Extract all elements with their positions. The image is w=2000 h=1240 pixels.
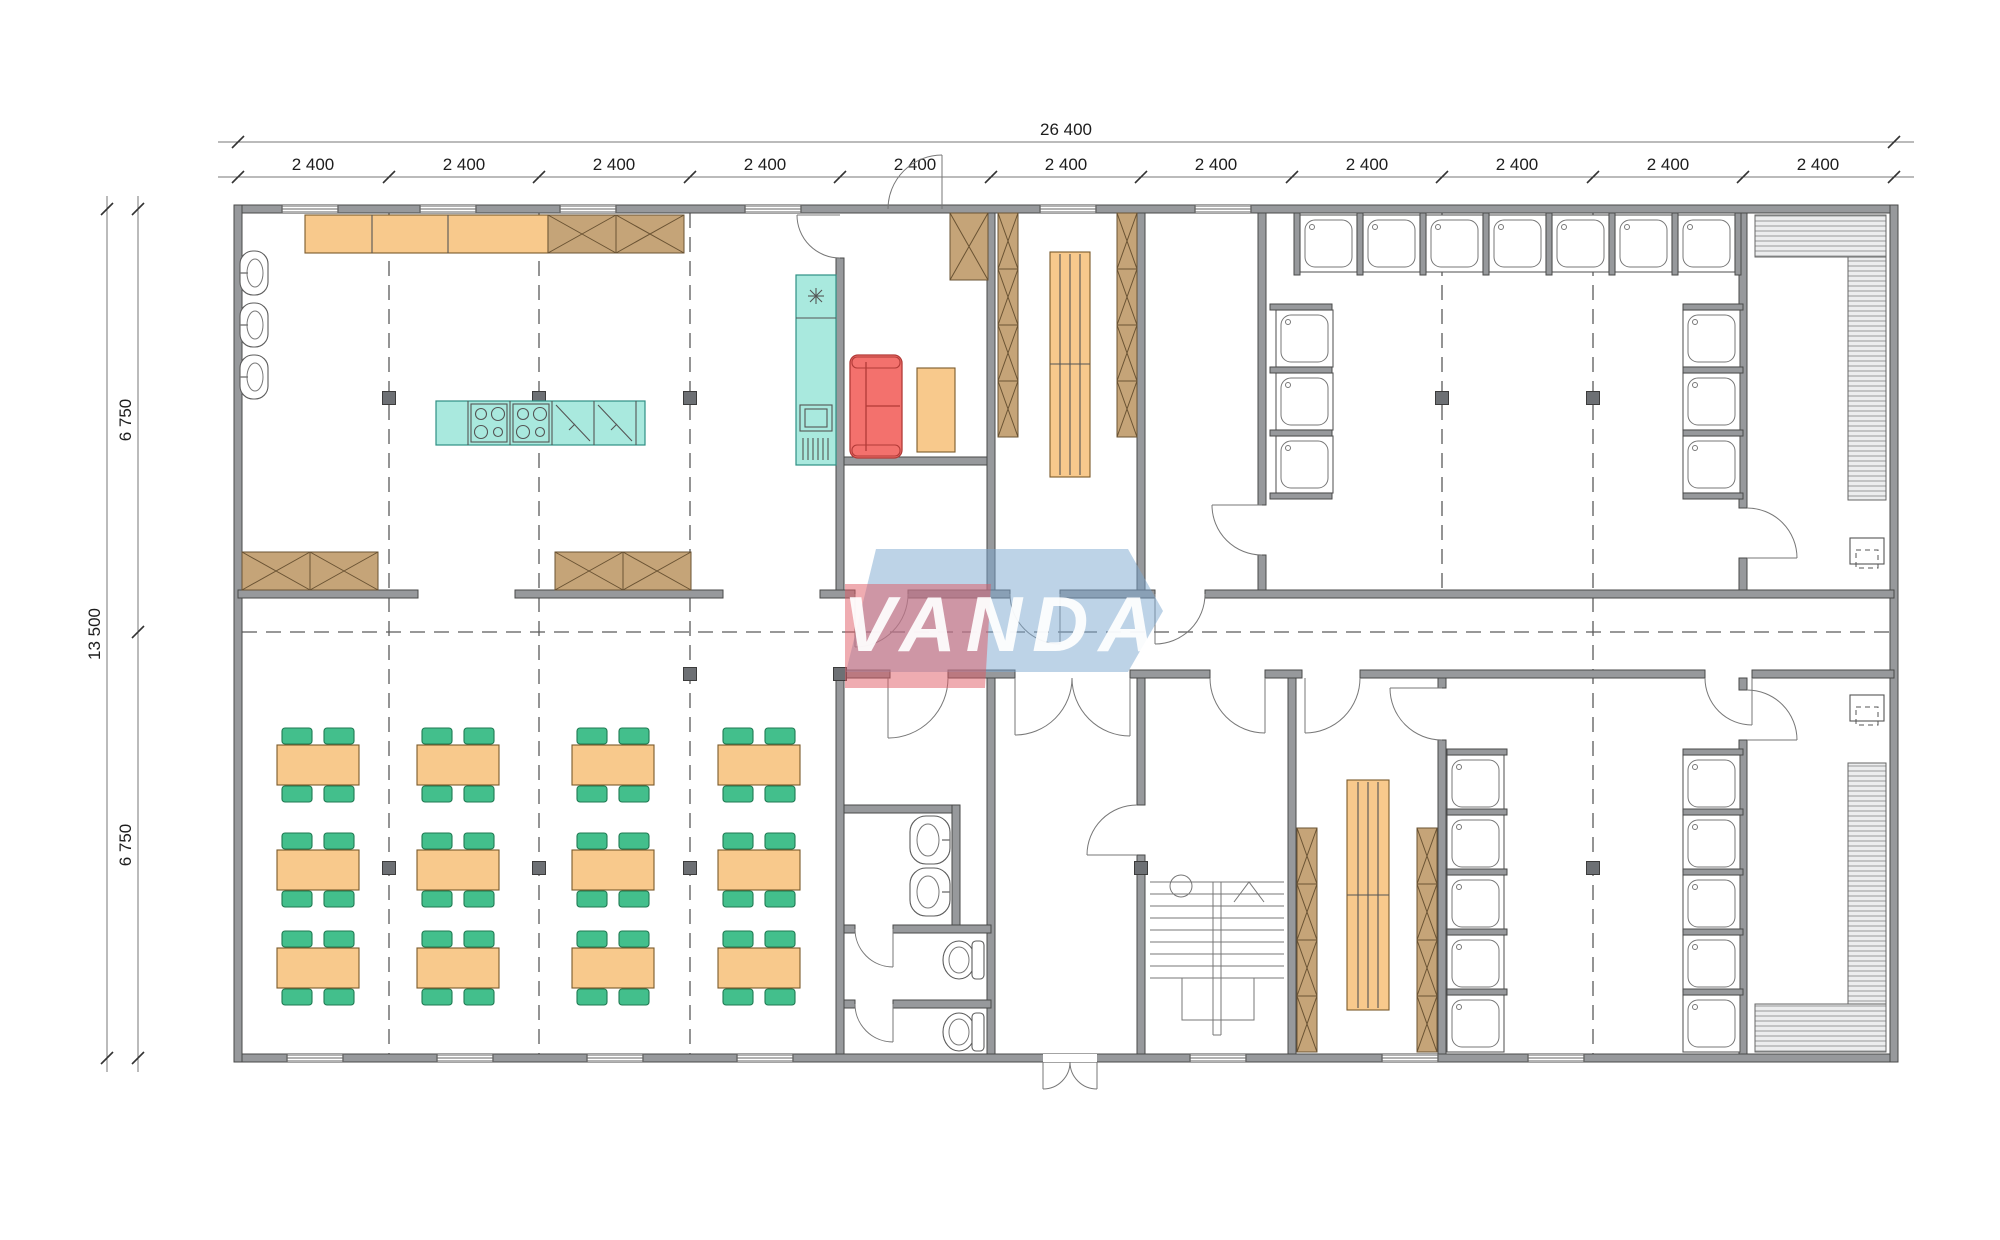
dim-lower-half: 6 750 <box>116 824 135 867</box>
shower-tray <box>1615 215 1672 272</box>
dining-table-set <box>277 728 359 802</box>
shower-tray <box>1683 875 1740 932</box>
toilet <box>943 941 984 979</box>
wall-interior <box>1739 558 1747 590</box>
tall-cabinet-x <box>1417 884 1437 940</box>
shower-tray <box>1447 875 1504 932</box>
window <box>560 205 616 213</box>
window <box>1195 205 1251 213</box>
floor-plan-drawing: 26 400 2 400 2 400 2 400 2 400 2 400 2 4… <box>0 0 2000 1235</box>
wall-interior <box>836 258 844 590</box>
tall-cabinet-x <box>1117 325 1137 381</box>
dim-bay: 2 400 <box>1797 155 1840 174</box>
wall-interior <box>515 590 723 598</box>
shower-tray <box>1447 935 1504 992</box>
wall-interior <box>1137 213 1145 590</box>
column <box>533 862 546 875</box>
wall-interior <box>844 1000 855 1008</box>
tall-cabinet-x <box>998 213 1018 269</box>
storage-shelving <box>1347 780 1389 1010</box>
storage-shelving <box>1050 252 1090 477</box>
tall-cabinet-x <box>1297 996 1317 1052</box>
wall-interior <box>1258 213 1266 505</box>
storage-room <box>998 213 1137 477</box>
shower-tray <box>1276 310 1333 367</box>
sauna-bottom <box>1755 695 1886 1052</box>
wall-interior <box>1438 740 1446 1054</box>
window <box>737 1054 793 1062</box>
freezer-star-icon <box>808 288 824 304</box>
wall-interior <box>952 805 960 925</box>
wash-basin <box>240 251 268 295</box>
dim-bay: 2 400 <box>1346 155 1389 174</box>
dining-table-set <box>417 728 499 802</box>
tall-cabinet-x <box>1297 828 1317 884</box>
sauna-bench <box>1848 257 1886 500</box>
tall-cabinet-x <box>1117 269 1137 325</box>
shower-room-top <box>1270 213 1743 499</box>
dim-total-height: 13 500 <box>85 608 104 660</box>
column <box>383 862 396 875</box>
window <box>1040 205 1096 213</box>
wall-interior <box>238 590 418 598</box>
shower-tray <box>1683 755 1740 812</box>
window <box>287 1054 343 1062</box>
dim-bay: 2 400 <box>744 155 787 174</box>
shower-tray <box>1683 373 1740 430</box>
column <box>1587 392 1600 405</box>
door-changing-shower <box>1390 688 1442 740</box>
door-drying-shower <box>1212 505 1262 555</box>
shower-tray <box>1300 215 1357 272</box>
wash-basin <box>910 868 950 916</box>
table <box>917 368 955 452</box>
door-hall-stairs <box>1087 805 1137 855</box>
dining-table-set <box>572 728 654 802</box>
toilet <box>943 1013 984 1051</box>
wash-basin <box>240 303 268 347</box>
wall-interior <box>844 925 855 933</box>
wall-interior <box>1360 670 1705 678</box>
dimension-top: 26 400 2 400 2 400 2 400 2 400 2 400 2 4… <box>218 120 1914 183</box>
wall-interior <box>1438 678 1446 688</box>
wash-basin <box>910 816 950 864</box>
shower-tray <box>1683 815 1740 872</box>
dining-table-set <box>718 728 800 802</box>
stair-direction-arrow <box>1234 882 1264 902</box>
kitchen-island <box>436 401 645 445</box>
wall-interior <box>1205 590 1894 598</box>
tall-cabinet-x <box>555 552 623 590</box>
tall-cabinet-x <box>1417 828 1437 884</box>
tall-cabinet-x <box>1117 213 1137 269</box>
tall-cabinet-x <box>998 381 1018 437</box>
dining-table-set <box>417 833 499 907</box>
sauna-bench <box>1755 1004 1886 1052</box>
shower-tray <box>1683 310 1740 367</box>
tall-cabinet-x <box>1117 381 1137 437</box>
wall-interior <box>987 678 995 1054</box>
column <box>684 862 697 875</box>
tall-cabinet-x <box>1417 940 1437 996</box>
break-room <box>850 213 988 458</box>
wall-interior <box>1288 678 1296 1054</box>
shower-tray <box>1447 995 1504 1052</box>
wall-interior <box>893 1000 991 1008</box>
wall-interior <box>1265 670 1302 678</box>
tall-cabinet-x <box>623 552 691 590</box>
sofa <box>850 355 902 458</box>
dimension-left: 13 500 6 750 6 750 <box>85 196 144 1072</box>
wall-interior <box>1258 555 1266 590</box>
shower-tray <box>1363 215 1420 272</box>
shower-tray <box>1552 215 1609 272</box>
shower-tray <box>1447 815 1504 872</box>
tall-cabinet-x <box>310 552 378 590</box>
column <box>684 392 697 405</box>
shower-tray <box>1683 995 1740 1052</box>
shower-tray <box>1678 215 1735 272</box>
changing-room <box>1297 780 1437 1052</box>
wall-interior <box>893 925 991 933</box>
dim-bay: 2 400 <box>894 155 937 174</box>
dining-table-set <box>718 833 800 907</box>
tall-cabinet-x <box>950 213 988 280</box>
wall-interior <box>1137 678 1145 805</box>
kitchen-counter <box>305 215 548 253</box>
door-break-to-kitchen <box>797 215 840 258</box>
shower-tray <box>1683 436 1740 493</box>
shower-tray <box>1276 373 1333 430</box>
column <box>834 668 847 681</box>
dining-table-set <box>572 833 654 907</box>
wall-exterior-right <box>1890 205 1898 1062</box>
tall-cabinet-x <box>242 552 310 590</box>
window <box>1190 1054 1246 1062</box>
window <box>1382 1054 1438 1062</box>
wall-interior <box>836 678 844 1054</box>
wall-interior <box>1137 855 1145 1054</box>
wall-interior <box>1130 670 1210 678</box>
refrigerator <box>796 275 836 465</box>
vanda-watermark: VANDA <box>843 549 1165 688</box>
dim-total-width: 26 400 <box>1040 120 1092 139</box>
tall-cabinet-x <box>616 215 684 253</box>
dim-bay: 2 400 <box>1195 155 1238 174</box>
wall-interior <box>844 805 960 813</box>
sauna-top <box>1755 215 1886 568</box>
dim-bay: 2 400 <box>1045 155 1088 174</box>
door-changing <box>1305 678 1360 733</box>
sauna-heater <box>1850 538 1884 568</box>
stair-landing <box>1182 978 1254 1020</box>
shower-room-bottom <box>1447 749 1743 1052</box>
column <box>1587 862 1600 875</box>
dim-bay: 2 400 <box>1647 155 1690 174</box>
tall-cabinet-x <box>998 325 1018 381</box>
dining-table-set <box>277 931 359 1005</box>
floor-plan-page: 26 400 2 400 2 400 2 400 2 400 2 400 2 4… <box>0 0 2000 1235</box>
shower-tray <box>1683 935 1740 992</box>
dim-bay: 2 400 <box>1496 155 1539 174</box>
tall-cabinet-x <box>1417 996 1437 1052</box>
door-main-entrance <box>1043 1054 1097 1089</box>
stairwell <box>1150 875 1284 1035</box>
window <box>587 1054 643 1062</box>
door-wc-stall <box>855 1004 893 1042</box>
shower-tray <box>1447 755 1504 812</box>
tall-cabinet-x <box>1297 940 1317 996</box>
wall-interior <box>1752 670 1894 678</box>
dim-bay: 2 400 <box>593 155 636 174</box>
column <box>1135 862 1148 875</box>
window <box>745 205 801 213</box>
shower-tray <box>1426 215 1483 272</box>
dim-bay: 2 400 <box>292 155 335 174</box>
staircase <box>1150 875 1284 1035</box>
dining-table-set <box>417 931 499 1005</box>
door-double-hall <box>1015 678 1130 736</box>
tall-cabinet-x <box>998 269 1018 325</box>
tall-cabinet-x <box>548 215 616 253</box>
shower-tray <box>1276 436 1333 493</box>
window <box>437 1054 493 1062</box>
window <box>282 205 338 213</box>
sauna-heater <box>1850 695 1884 725</box>
dim-upper-half: 6 750 <box>116 399 135 442</box>
window <box>420 205 476 213</box>
door-stairwell <box>1210 678 1265 733</box>
column <box>1436 392 1449 405</box>
wall-interior <box>1739 678 1747 690</box>
door-sauna-bottom <box>1747 690 1797 740</box>
dim-bay: 2 400 <box>443 155 486 174</box>
dining-table-set <box>277 833 359 907</box>
dining-table-set <box>718 931 800 1005</box>
shower-tray <box>1489 215 1546 272</box>
kitchen <box>240 215 836 590</box>
watermark-text: VANDA <box>843 580 1165 668</box>
column <box>383 392 396 405</box>
tall-cabinet-x <box>1297 884 1317 940</box>
column <box>684 668 697 681</box>
dining-table-set <box>572 931 654 1005</box>
door-sauna-top <box>1747 508 1797 558</box>
window <box>1528 1054 1584 1062</box>
wash-basin <box>240 355 268 399</box>
door-wc-stall <box>855 929 893 967</box>
sauna-bench <box>1755 215 1886 257</box>
